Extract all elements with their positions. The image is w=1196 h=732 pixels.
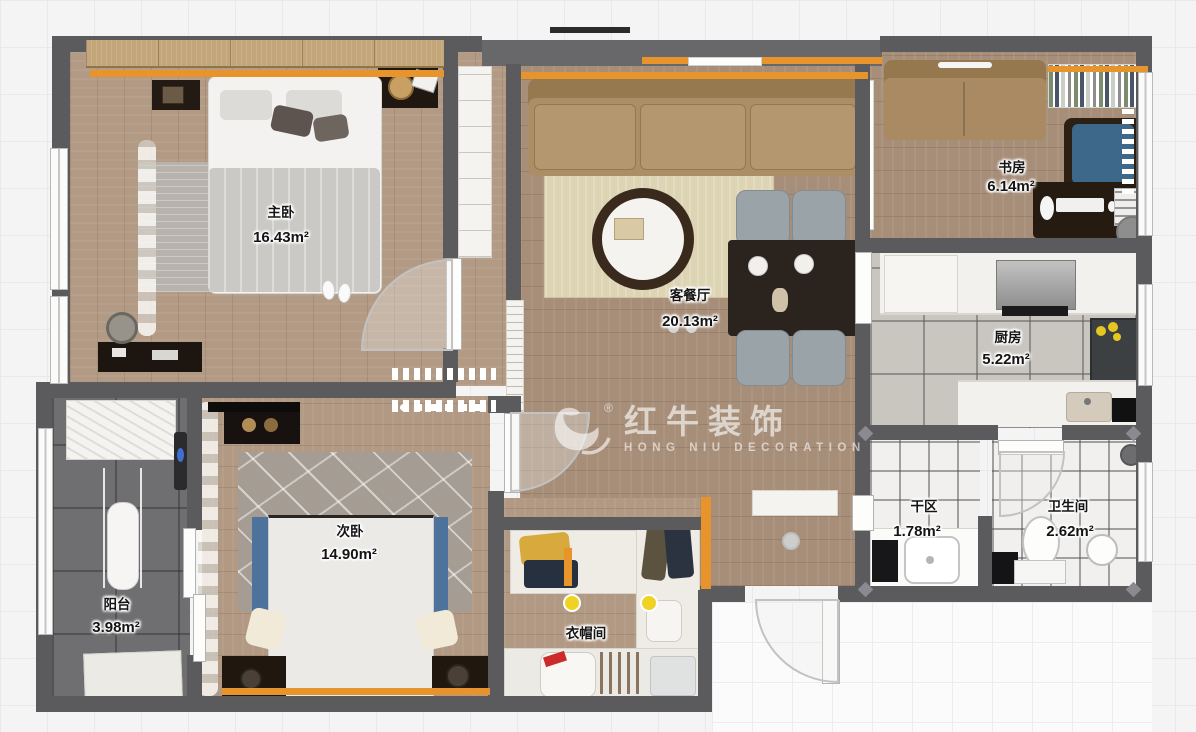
room-label-cloakroom: 衣帽间: [566, 627, 607, 641]
room-area-bath: 2.62m²: [1046, 524, 1094, 539]
room-area-master: 16.43m²: [253, 230, 309, 245]
room-area-living: 20.13m²: [662, 314, 718, 329]
room-label-dry: 干区: [911, 500, 938, 514]
floor-plan: 主卧 16.43m² 客餐厅 20.13m² 书房 6.14m² 厨房 5.22…: [0, 0, 1196, 732]
room-area-study: 6.14m²: [987, 179, 1035, 194]
room-area-dry: 1.78m²: [893, 524, 941, 539]
room-label-balcony: 阳台: [104, 598, 131, 612]
room-label-bath: 卫生间: [1048, 500, 1089, 514]
room-label-master: 主卧: [268, 206, 295, 220]
room-area-balcony: 3.98m²: [92, 620, 140, 635]
room-label-living: 客餐厅: [670, 289, 711, 303]
room-label-bedroom2: 次卧: [337, 525, 364, 539]
room-label-kitchen: 厨房: [995, 331, 1022, 345]
room-area-kitchen: 5.22m²: [982, 352, 1030, 367]
room-label-study: 书房: [999, 161, 1026, 175]
room-area-bedroom2: 14.90m²: [321, 547, 377, 562]
